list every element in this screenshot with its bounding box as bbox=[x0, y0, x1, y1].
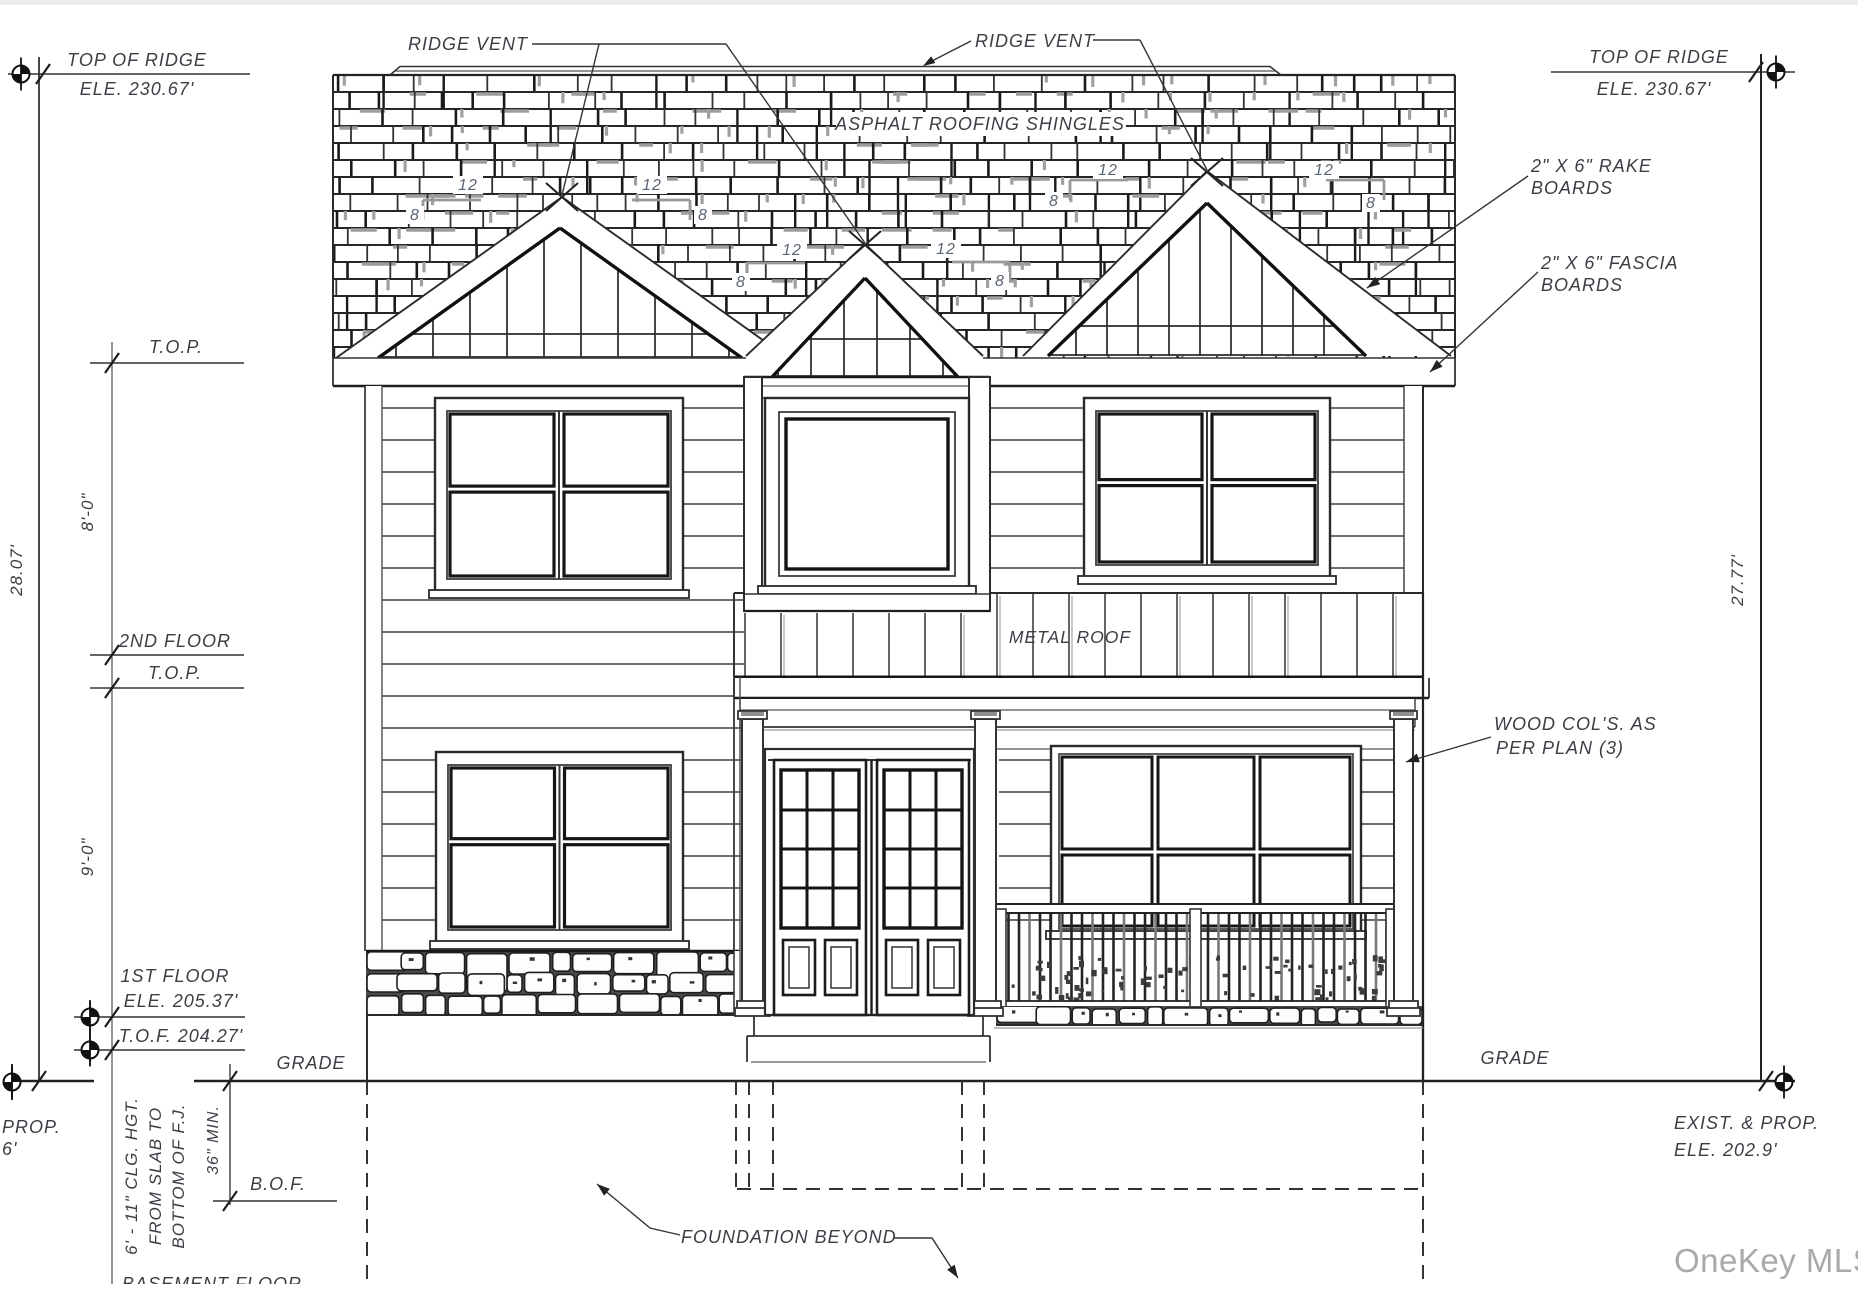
svg-text:PROP.: PROP. bbox=[2, 1117, 61, 1137]
svg-text:8: 8 bbox=[995, 273, 1005, 290]
svg-text:ELE. 205.37': ELE. 205.37' bbox=[124, 991, 239, 1011]
svg-text:RIDGE VENT: RIDGE VENT bbox=[408, 34, 529, 54]
svg-text:12: 12 bbox=[458, 177, 478, 194]
svg-text:BASEMENT FLOOR: BASEMENT FLOOR bbox=[122, 1274, 302, 1284]
svg-text:8: 8 bbox=[698, 207, 708, 224]
svg-text:2ND FLOOR: 2ND FLOOR bbox=[118, 631, 231, 651]
svg-text:BOARDS: BOARDS bbox=[1541, 275, 1623, 295]
svg-text:12: 12 bbox=[782, 242, 802, 259]
svg-text:FROM SLAB TO: FROM SLAB TO bbox=[146, 1107, 165, 1245]
svg-text:METAL ROOF: METAL ROOF bbox=[1009, 627, 1131, 647]
svg-text:BOARDS: BOARDS bbox=[1531, 178, 1613, 198]
svg-text:RIDGE VENT: RIDGE VENT bbox=[975, 31, 1096, 51]
svg-text:ASPHALT ROOFING SHINGLES: ASPHALT ROOFING SHINGLES bbox=[834, 114, 1125, 134]
svg-text:B.O.F.: B.O.F. bbox=[250, 1174, 306, 1194]
svg-text:ELE. 202.9': ELE. 202.9' bbox=[1674, 1140, 1778, 1160]
svg-text:6': 6' bbox=[2, 1139, 17, 1159]
svg-text:T.O.P.: T.O.P. bbox=[148, 663, 202, 683]
svg-text:BOTTOM OF F.J.: BOTTOM OF F.J. bbox=[169, 1103, 188, 1248]
svg-text:8'-0": 8'-0" bbox=[78, 493, 97, 532]
svg-text:1ST FLOOR: 1ST FLOOR bbox=[120, 966, 229, 986]
svg-text:T.O.P.: T.O.P. bbox=[149, 337, 203, 357]
svg-text:9'-0": 9'-0" bbox=[78, 838, 97, 877]
svg-text:T.O.F. 204.27': T.O.F. 204.27' bbox=[119, 1026, 244, 1046]
svg-text:2" X 6" RAKE: 2" X 6" RAKE bbox=[1530, 156, 1652, 176]
svg-text:12: 12 bbox=[1314, 162, 1334, 179]
svg-text:6' - 11" CLG. HGT.: 6' - 11" CLG. HGT. bbox=[122, 1097, 141, 1255]
svg-text:OneKey MLS: OneKey MLS bbox=[1674, 1242, 1858, 1279]
svg-text:12: 12 bbox=[1098, 162, 1118, 179]
svg-text:12: 12 bbox=[936, 241, 956, 258]
svg-text:27.77': 27.77' bbox=[1728, 554, 1747, 607]
svg-text:TOP OF RIDGE: TOP OF RIDGE bbox=[1589, 47, 1729, 67]
svg-text:8: 8 bbox=[410, 207, 420, 224]
svg-text:36" MIN.: 36" MIN. bbox=[205, 1105, 222, 1175]
svg-text:8: 8 bbox=[736, 274, 746, 291]
svg-text:8: 8 bbox=[1049, 193, 1059, 210]
svg-text:GRADE: GRADE bbox=[276, 1053, 345, 1073]
svg-text:ELE. 230.67': ELE. 230.67' bbox=[1597, 79, 1712, 99]
svg-text:12: 12 bbox=[642, 177, 662, 194]
svg-text:28.07': 28.07' bbox=[7, 544, 26, 597]
svg-text:WOOD COL'S. AS: WOOD COL'S. AS bbox=[1494, 714, 1657, 734]
svg-text:EXIST. & PROP.: EXIST. & PROP. bbox=[1674, 1113, 1819, 1133]
svg-text:2" X 6" FASCIA: 2" X 6" FASCIA bbox=[1540, 253, 1679, 273]
svg-text:ELE. 230.67': ELE. 230.67' bbox=[80, 79, 195, 99]
svg-text:TOP OF RIDGE: TOP OF RIDGE bbox=[67, 50, 207, 70]
svg-text:8: 8 bbox=[1366, 195, 1376, 212]
svg-text:GRADE: GRADE bbox=[1480, 1048, 1549, 1068]
svg-text:FOUNDATION BEYOND: FOUNDATION BEYOND bbox=[681, 1227, 897, 1247]
svg-text:PER PLAN (3): PER PLAN (3) bbox=[1496, 738, 1624, 758]
